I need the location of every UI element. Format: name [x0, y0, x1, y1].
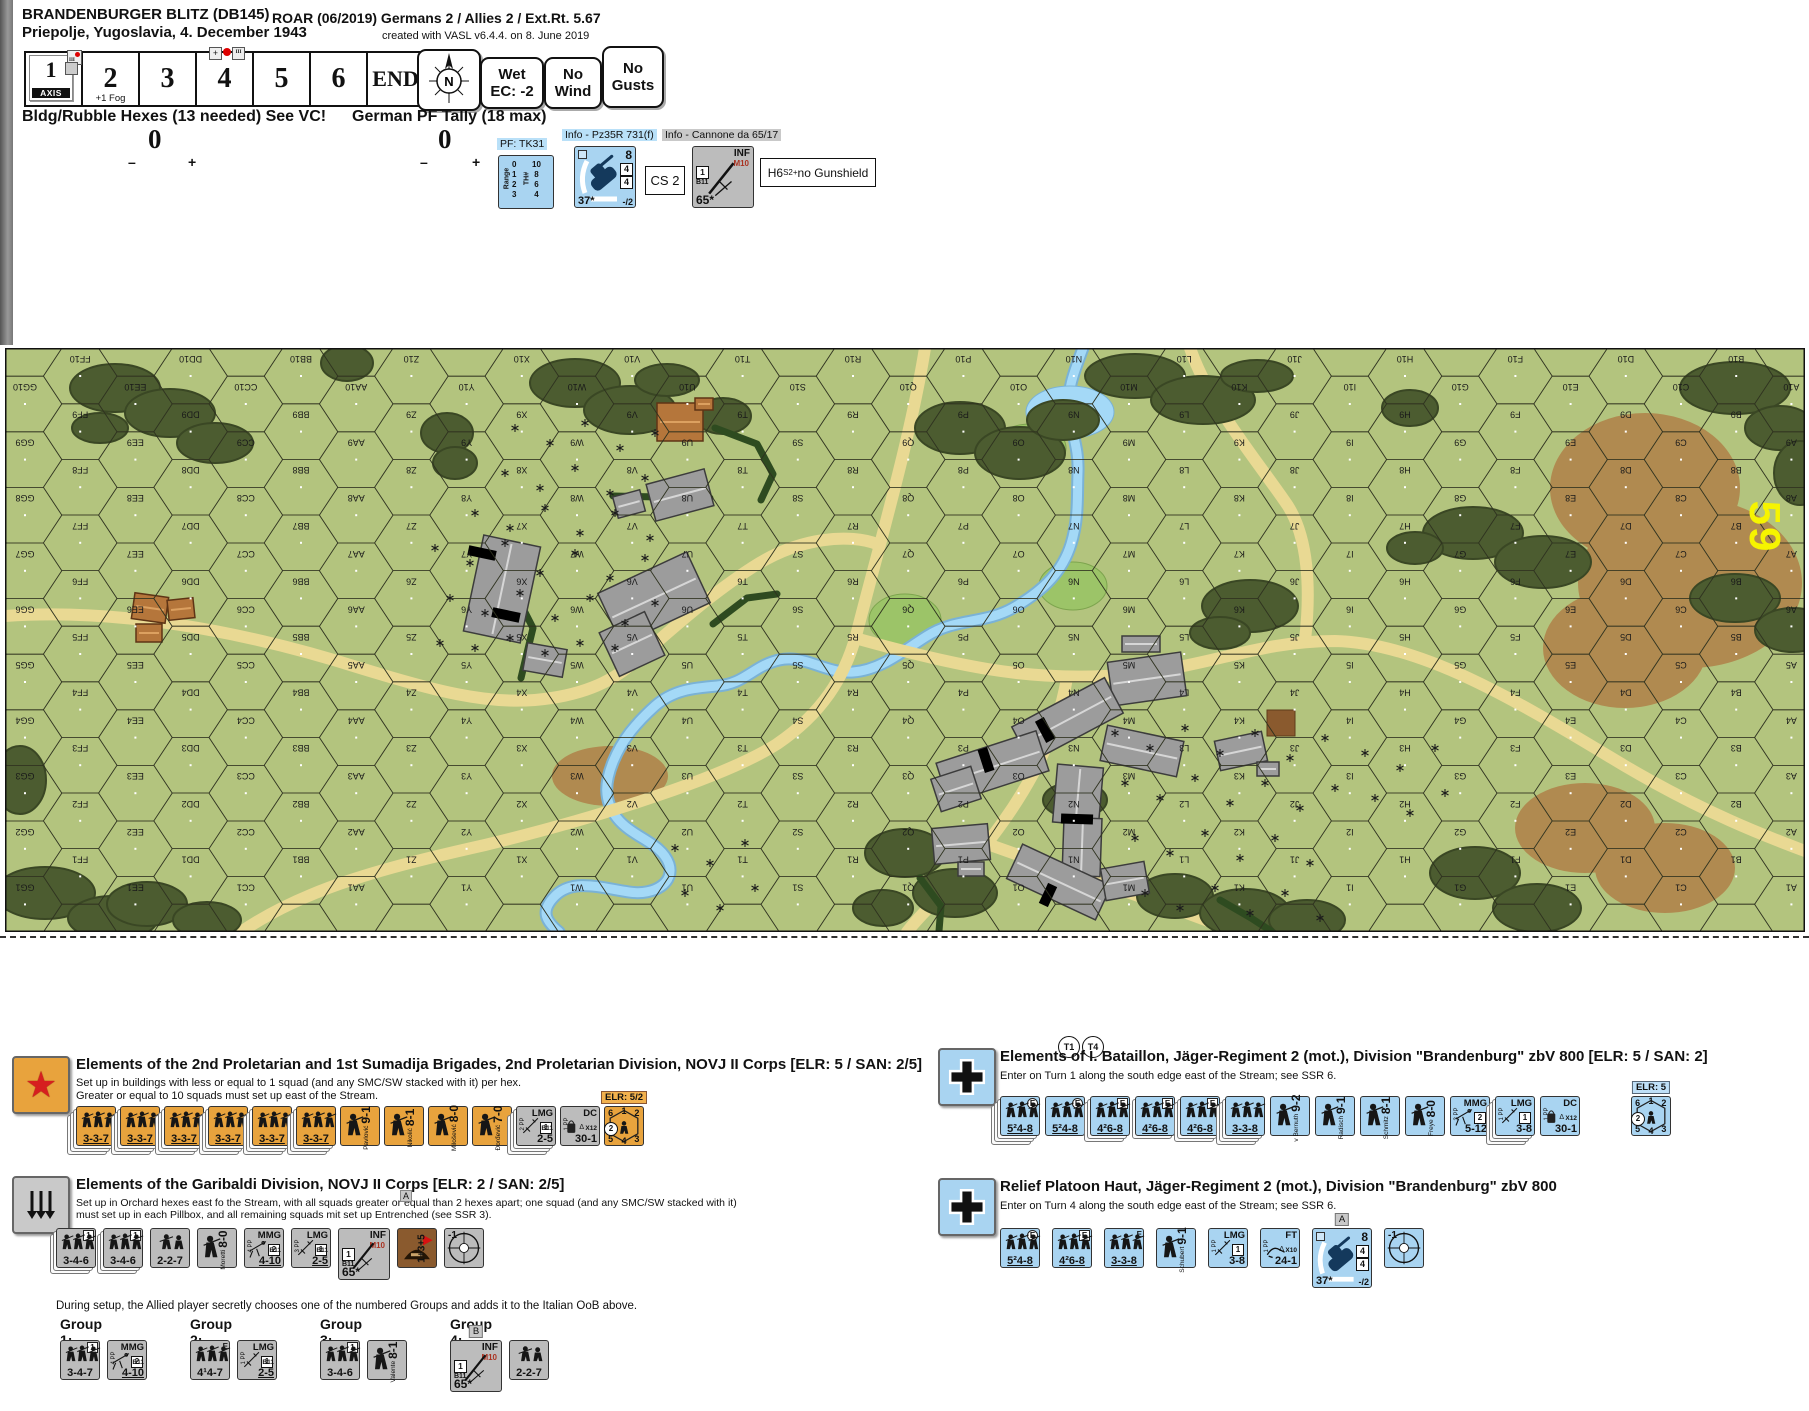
hex-map-board-59[interactable]: GG10GG9GG8GG7GG6GG5GG4GG3GG2GG1FF10FF9FF… — [5, 348, 1805, 932]
svg-text:CC9: CC9 — [237, 438, 255, 448]
svg-text:AA10: AA10 — [345, 382, 367, 392]
svg-text:M1: M1 — [1123, 882, 1136, 892]
svg-text:V4: V4 — [627, 688, 638, 698]
squad-counter[interactable]: 3-3-7 — [296, 1106, 336, 1146]
balkenkreuz-icon — [946, 1186, 988, 1228]
svg-text:J6: J6 — [1290, 576, 1300, 586]
svg-text:C2: C2 — [1675, 827, 1687, 837]
svg-text:EE1: EE1 — [127, 882, 144, 892]
allied-panel-title: Elements of the 2nd Proletarian and 1st … — [76, 1056, 922, 1073]
svg-text:Y6: Y6 — [461, 604, 472, 614]
allied-setup-line2: Greater or equal to 10 squads must set u… — [76, 1090, 378, 1102]
svg-text:T7: T7 — [737, 521, 748, 531]
svg-text:H4: H4 — [1399, 688, 1411, 698]
crew-counter[interactable]: 2-2-7 — [509, 1340, 549, 1380]
svg-text:Z6: Z6 — [406, 576, 417, 586]
turn-cell-4[interactable]: 4+III — [197, 51, 254, 107]
wind-line: Wind — [555, 83, 592, 100]
squad-counter[interactable]: 3-3-8 — [1225, 1096, 1265, 1136]
svg-text:R5: R5 — [847, 632, 859, 642]
svg-text:L1: L1 — [1179, 854, 1189, 864]
Schmitz-counter[interactable]: Schmitz8-1 — [1360, 1096, 1400, 1136]
acq-counter[interactable]: -1 — [444, 1228, 484, 1268]
cannone-counter[interactable]: INFM101B1165* — [692, 146, 754, 208]
bldg-minus-button[interactable]: – — [128, 154, 136, 170]
svg-text:K9: K9 — [1234, 438, 1245, 448]
garibaldi-faction-icon — [12, 1176, 70, 1234]
svg-text:FF8: FF8 — [72, 465, 88, 475]
svg-text:O2: O2 — [1013, 827, 1025, 837]
svg-text:V9: V9 — [627, 410, 638, 420]
svg-text:R7: R7 — [847, 521, 859, 531]
svg-text:E1: E1 — [1565, 882, 1576, 892]
squad-counter[interactable]: E5²4-8 — [1045, 1096, 1085, 1136]
pf-tk-counter[interactable]: Range 0 1 2 3 TH# 10 8 6 4 — [498, 155, 554, 209]
svg-text:E9: E9 — [1565, 438, 1576, 448]
marker-a-label: A — [400, 1190, 412, 1202]
svg-text:FF5: FF5 — [72, 632, 88, 642]
svg-text:M2: M2 — [1123, 827, 1136, 837]
gunshield-sup: S2+ — [783, 168, 797, 177]
svg-text:O10: O10 — [1010, 382, 1027, 392]
german1-panel-title: Elements of I. Bataillon, Jäger-Regiment… — [1000, 1048, 1708, 1065]
weather-box[interactable]: Wet EC: -2 — [480, 57, 544, 109]
svg-text:Q5: Q5 — [902, 660, 914, 670]
turn-cell-2[interactable]: 2+1 Fog — [83, 51, 140, 107]
pf-th-label: TH# — [524, 162, 531, 196]
svg-text:L9: L9 — [1179, 410, 1189, 420]
map-panel-separator — [0, 936, 1809, 938]
svg-text:X8: X8 — [516, 465, 527, 475]
svg-text:X1: X1 — [516, 854, 527, 864]
garibaldi-counter-row: 13-4-613-4-62-2-7Moretti8-0MMG4 PP2B114-… — [56, 1228, 484, 1280]
turn-cell-1[interactable]: 1AXISIII — [24, 51, 83, 107]
svg-text:A3: A3 — [1786, 771, 1797, 781]
svg-text:CC8: CC8 — [237, 493, 255, 503]
svg-text:T1: T1 — [737, 854, 748, 864]
svg-text:Y1: Y1 — [461, 882, 472, 892]
cannone-info-label: Info - Cannone da 65/17 — [662, 129, 781, 141]
svg-text:Z8: Z8 — [406, 465, 417, 475]
svg-text:N9: N9 — [1068, 410, 1080, 420]
squad-counter[interactable]: 13-4-6 — [103, 1228, 143, 1268]
svg-text:EE9: EE9 — [127, 438, 144, 448]
svg-text:S2: S2 — [792, 827, 803, 837]
svg-text:I8: I8 — [1346, 493, 1354, 503]
pz35r-counter[interactable]: 84437*-/2 — [574, 146, 636, 208]
counter-top-label: A — [1335, 1213, 1349, 1226]
compass-box[interactable]: N — [417, 49, 481, 111]
squad-counter[interactable]: 3-3-7 — [76, 1106, 116, 1146]
Schubert-counter[interactable]: Schubert9-1 — [1156, 1228, 1196, 1268]
svg-text:D5: D5 — [1620, 632, 1632, 642]
LMG-counter[interactable]: LMG3 PP1B112-5 — [291, 1228, 331, 1268]
gusts-box[interactable]: No Gusts — [602, 46, 664, 108]
svg-text:BB1: BB1 — [292, 854, 309, 864]
LMG-counter[interactable]: LMG1 PP13-8 — [1495, 1096, 1535, 1136]
elr-counter[interactable]: 6125432ELR: 5 — [1631, 1096, 1671, 1136]
board-number: 59 — [1740, 501, 1789, 554]
svg-text:B2: B2 — [1731, 799, 1742, 809]
tank-counter[interactable]: 84437*-/2A — [1312, 1228, 1372, 1288]
squad-counter[interactable]: E4²6-8 — [1052, 1228, 1092, 1268]
squad-counter[interactable]: E3-3-8 — [1104, 1228, 1144, 1268]
svg-text:S10: S10 — [790, 382, 806, 392]
weather-line: EC: -2 — [490, 83, 533, 100]
LMG-counter[interactable]: LMG1 PP1B112-5 — [237, 1340, 277, 1380]
svg-text:H7: H7 — [1399, 521, 1411, 531]
svg-text:P10: P10 — [955, 354, 971, 364]
svg-text:E2: E2 — [1565, 827, 1576, 837]
svg-text:DD10: DD10 — [179, 354, 202, 364]
svg-text:B1: B1 — [1731, 854, 1742, 864]
v Bernuth-counter[interactable]: v Bernuth9-2 — [1270, 1096, 1310, 1136]
svg-text:J8: J8 — [1290, 465, 1300, 475]
pf-minus-button[interactable]: – — [420, 154, 428, 170]
svg-text:Z9: Z9 — [406, 410, 417, 420]
svg-text:N7: N7 — [1068, 521, 1080, 531]
svg-text:M9: M9 — [1123, 438, 1136, 448]
group-choice-note: During setup, the Allied player secretly… — [56, 1300, 637, 1312]
svg-text:R3: R3 — [847, 743, 859, 753]
svg-text:GG10: GG10 — [13, 382, 37, 392]
svg-text:M6: M6 — [1123, 604, 1136, 614]
turn-cell-6[interactable]: 6 — [311, 51, 368, 107]
svg-text:Y4: Y4 — [461, 716, 472, 726]
svg-text:I6: I6 — [1346, 604, 1354, 614]
svg-text:V7: V7 — [627, 521, 638, 531]
svg-text:S1: S1 — [792, 882, 803, 892]
svg-text:U9: U9 — [682, 438, 694, 448]
svg-text:C9: C9 — [1675, 438, 1687, 448]
svg-text:Z7: Z7 — [406, 521, 417, 531]
svg-text:X2: X2 — [516, 799, 527, 809]
svg-text:M7: M7 — [1123, 549, 1136, 559]
svg-text:R1: R1 — [847, 854, 859, 864]
svg-text:DD6: DD6 — [182, 576, 200, 586]
svg-text:E7: E7 — [1565, 549, 1576, 559]
svg-text:V2: V2 — [627, 799, 638, 809]
svg-text:P8: P8 — [958, 465, 969, 475]
svg-text:FF9: FF9 — [72, 410, 88, 420]
german-faction-icon — [938, 1048, 996, 1106]
svg-text:Q6: Q6 — [902, 604, 914, 614]
counter-top-label: ELR: 5 — [1632, 1081, 1670, 1094]
wind-line: No — [563, 66, 583, 83]
LMG-counter[interactable]: LMG2 PP1B112-5 — [516, 1106, 556, 1146]
squad-counter[interactable]: 3-3-7 — [164, 1106, 204, 1146]
svg-text:O6: O6 — [1013, 604, 1025, 614]
group-2-counters: E4¹4-7LMG1 PP1B112-5 — [190, 1340, 277, 1380]
svg-text:X7: X7 — [516, 521, 527, 531]
svg-text:D1: D1 — [1620, 854, 1632, 864]
svg-text:Q3: Q3 — [902, 771, 914, 781]
svg-text:P2: P2 — [958, 799, 969, 809]
svg-text:K4: K4 — [1234, 716, 1245, 726]
squad-counter[interactable]: E5²4-8 — [1000, 1096, 1040, 1136]
weather-line: Wet — [498, 66, 525, 83]
svg-text:P5: P5 — [958, 632, 969, 642]
svg-text:BB10: BB10 — [290, 354, 312, 364]
svg-text:I2: I2 — [1346, 827, 1354, 837]
squad-counter[interactable]: E4¹4-7 — [190, 1340, 230, 1380]
squad-counter[interactable]: 3-3-7 — [120, 1106, 160, 1146]
svg-text:E4: E4 — [1565, 716, 1576, 726]
mini-counter[interactable] — [65, 62, 78, 75]
board-59-svg[interactable]: GG10GG9GG8GG7GG6GG5GG4GG3GG2GG1FF10FF9FF… — [5, 348, 1805, 932]
Milošević-counter[interactable]: Milošević8-0 — [428, 1106, 468, 1146]
pf-range-label: Range — [504, 162, 511, 196]
svg-text:GG8: GG8 — [15, 493, 34, 503]
Pavlović-counter[interactable]: Pavlović9-1 — [340, 1106, 380, 1146]
svg-text:X10: X10 — [514, 354, 530, 364]
svg-text:FF7: FF7 — [72, 521, 88, 531]
svg-text:B8: B8 — [1731, 465, 1742, 475]
svg-text:BB9: BB9 — [292, 410, 309, 420]
MMG-counter[interactable]: MMG3 PP25-12 — [1450, 1096, 1490, 1136]
turn-cell-5[interactable]: 5 — [254, 51, 311, 107]
squad-counter[interactable]: 13-4-7 — [60, 1340, 100, 1380]
LMG-counter[interactable]: LMG1 PP13-8 — [1208, 1228, 1248, 1268]
gunshield-rest: no Gunshield — [798, 166, 869, 180]
Freye-counter[interactable]: Freye8-0 — [1405, 1096, 1445, 1136]
squad-counter[interactable]: E4²6-8 — [1090, 1096, 1130, 1136]
garibaldi-panel-title: Elements of the Garibaldi Division, NOVJ… — [76, 1176, 564, 1193]
balkenkreuz-icon — [946, 1056, 988, 1098]
svg-text:R6: R6 — [847, 576, 859, 586]
squad-counter[interactable]: E5²4-8 — [1000, 1228, 1040, 1268]
svg-text:O9: O9 — [1013, 438, 1025, 448]
svg-text:P4: P4 — [958, 688, 969, 698]
svg-text:BB6: BB6 — [292, 576, 309, 586]
allied-counter-row: 3-3-73-3-73-3-73-3-73-3-73-3-7Pavlović9-… — [76, 1106, 644, 1146]
svg-text:D6: D6 — [1620, 576, 1632, 586]
svg-text:G2: G2 — [1454, 827, 1466, 837]
svg-text:FF1: FF1 — [72, 854, 88, 864]
svg-text:R8: R8 — [847, 465, 859, 475]
svg-text:T10: T10 — [735, 354, 751, 364]
svg-text:DD4: DD4 — [182, 688, 200, 698]
svg-text:T3: T3 — [737, 743, 748, 753]
svg-text:J4: J4 — [1290, 688, 1300, 698]
svg-text:D4: D4 — [1620, 688, 1632, 698]
svg-text:FF10: FF10 — [70, 354, 91, 364]
svg-text:Q10: Q10 — [900, 382, 917, 392]
svg-text:E6: E6 — [1565, 604, 1576, 614]
svg-text:H1: H1 — [1399, 854, 1411, 864]
svg-text:C10: C10 — [1673, 382, 1690, 392]
svg-text:CC2: CC2 — [237, 827, 255, 837]
svg-text:R9: R9 — [847, 410, 859, 420]
svg-text:CC1: CC1 — [237, 882, 255, 892]
svg-text:DD3: DD3 — [182, 743, 200, 753]
svg-text:W2: W2 — [570, 827, 584, 837]
svg-text:M4: M4 — [1123, 716, 1136, 726]
svg-text:AA4: AA4 — [348, 716, 365, 726]
svg-text:P6: P6 — [958, 576, 969, 586]
window-edge — [0, 0, 13, 345]
svg-text:O4: O4 — [1013, 716, 1025, 726]
counter-top-label: ELR: 5/2 — [601, 1091, 647, 1104]
svg-text:F9: F9 — [1510, 410, 1521, 420]
svg-text:B3: B3 — [1731, 743, 1742, 753]
pf-range-values: 0 1 2 3 — [512, 160, 516, 200]
svg-text:G10: G10 — [1452, 382, 1469, 392]
MMG-counter[interactable]: MMG4 PP2B114-10 — [244, 1228, 284, 1268]
svg-text:Z5: Z5 — [406, 632, 417, 642]
pf-counter-label: PF: TK31 — [497, 138, 547, 150]
svg-text:I5: I5 — [1346, 660, 1354, 670]
vasl-window: { "header":{ "title":"BRANDENBURGER BLIT… — [0, 0, 1809, 1411]
svg-text:GG6: GG6 — [15, 604, 34, 614]
compass-icon: N — [419, 51, 479, 109]
Đorđević-counter[interactable]: Đorđević7-0 — [472, 1106, 512, 1146]
gunshield-h6: H6 — [768, 166, 783, 180]
svg-text:W4: W4 — [570, 716, 584, 726]
svg-text:FF4: FF4 — [72, 688, 88, 698]
svg-text:K3: K3 — [1234, 771, 1245, 781]
svg-text:BB4: BB4 — [292, 688, 309, 698]
svg-text:H3: H3 — [1399, 743, 1411, 753]
svg-text:BB3: BB3 — [292, 743, 309, 753]
svg-text:N5: N5 — [1068, 632, 1080, 642]
turn-track: 1AXISIII2+1 Fog34+III56END — [24, 51, 425, 107]
svg-text:AA6: AA6 — [348, 604, 365, 614]
svg-text:D2: D2 — [1620, 799, 1632, 809]
svg-text:Q1: Q1 — [902, 882, 914, 892]
pf-plus-button[interactable]: + — [472, 154, 480, 170]
bldg-tally-value[interactable]: 0 — [148, 124, 162, 155]
Valente-counter[interactable]: Valente8-1 — [367, 1340, 407, 1380]
svg-text:O8: O8 — [1013, 493, 1025, 503]
svg-text:H2: H2 — [1399, 799, 1411, 809]
svg-text:S6: S6 — [792, 604, 803, 614]
svg-text:L3: L3 — [1179, 743, 1189, 753]
svg-text:G7: G7 — [1454, 549, 1466, 559]
svg-text:EE2: EE2 — [127, 827, 144, 837]
svg-text:U5: U5 — [682, 660, 694, 670]
svg-text:GG4: GG4 — [15, 716, 34, 726]
svg-text:L5: L5 — [1179, 632, 1189, 642]
svg-text:J10: J10 — [1287, 354, 1302, 364]
svg-text:Q7: Q7 — [902, 549, 914, 559]
svg-text:E3: E3 — [1565, 771, 1576, 781]
elr-counter[interactable]: 6125432ELR: 5/2 — [604, 1106, 644, 1146]
svg-text:T4: T4 — [737, 688, 748, 698]
svg-text:V1: V1 — [627, 854, 638, 864]
svg-text:T5: T5 — [737, 632, 748, 642]
squad-counter[interactable]: 3-3-7 — [252, 1106, 292, 1146]
german2-counter-row: E5²4-8E4²6-8E3-3-8Schubert9-1LMG1 PP13-8… — [1000, 1228, 1424, 1288]
svg-text:BB5: BB5 — [292, 632, 309, 642]
compass-n: N — [444, 74, 453, 89]
svg-text:Q8: Q8 — [902, 493, 914, 503]
INF-counter[interactable]: INFM101B1165*B — [450, 1340, 502, 1392]
turn-cell-3[interactable]: 3 — [140, 51, 197, 107]
three-arrows-icon — [21, 1185, 61, 1225]
svg-text:V6: V6 — [627, 576, 638, 586]
svg-text:Y2: Y2 — [461, 827, 472, 837]
wind-box[interactable]: No Wind — [544, 57, 602, 109]
turn4-mini-counters[interactable]: +III — [209, 47, 245, 60]
svg-text:G4: G4 — [1454, 716, 1466, 726]
svg-text:N8: N8 — [1068, 465, 1080, 475]
DC-counter[interactable]: DC1 PPX12Δ30-1 — [560, 1106, 600, 1146]
DC-counter[interactable]: DC1 PPX12Δ30-1 — [1540, 1096, 1580, 1136]
svg-text:DD8: DD8 — [182, 465, 200, 475]
INF-counter[interactable]: INFM101B1165* — [338, 1228, 390, 1280]
svg-text:O7: O7 — [1013, 549, 1025, 559]
svg-text:Z1: Z1 — [406, 854, 417, 864]
Nikolić-counter[interactable]: Nikolić8-1 — [384, 1106, 424, 1146]
svg-text:F2: F2 — [1510, 799, 1521, 809]
pillbox-counter[interactable]: 1+3+5 — [397, 1228, 437, 1268]
svg-text:H5: H5 — [1399, 632, 1411, 642]
svg-text:A6: A6 — [1786, 604, 1797, 614]
svg-text:CC10: CC10 — [234, 382, 257, 392]
squad-counter[interactable]: E4²6-8 — [1180, 1096, 1220, 1136]
svg-text:C1: C1 — [1675, 882, 1687, 892]
svg-text:U3: U3 — [682, 771, 694, 781]
german1-entry-line: Enter on Turn 1 along the south edge eas… — [1000, 1070, 1336, 1082]
counter-top-label: B — [469, 1325, 483, 1338]
squad-counter[interactable]: 13-4-6 — [320, 1340, 360, 1380]
svg-text:V10: V10 — [624, 354, 640, 364]
svg-text:A10: A10 — [1783, 382, 1799, 392]
Radisch-counter[interactable]: Radisch9-1 — [1315, 1096, 1355, 1136]
svg-text:W3: W3 — [570, 771, 584, 781]
svg-text:V8: V8 — [627, 465, 638, 475]
svg-text:L4: L4 — [1179, 688, 1189, 698]
svg-text:M5: M5 — [1123, 660, 1136, 670]
svg-text:Y9: Y9 — [461, 438, 472, 448]
svg-text:CC5: CC5 — [237, 660, 255, 670]
svg-text:E5: E5 — [1565, 660, 1576, 670]
acq-counter[interactable]: -1 — [1384, 1228, 1424, 1268]
svg-text:Z10: Z10 — [404, 354, 420, 364]
svg-text:DD2: DD2 — [182, 799, 200, 809]
svg-text:R4: R4 — [847, 688, 859, 698]
svg-text:GG5: GG5 — [15, 660, 34, 670]
Moretti-counter[interactable]: Moretti8-0 — [197, 1228, 237, 1268]
bldg-plus-button[interactable]: + — [188, 154, 196, 170]
svg-text:I3: I3 — [1346, 771, 1354, 781]
svg-text:DD9: DD9 — [182, 410, 200, 420]
svg-text:N4: N4 — [1068, 688, 1080, 698]
FT-counter[interactable]: FT1 PPX10Δ24-1 — [1260, 1228, 1300, 1268]
svg-text:T8: T8 — [737, 465, 748, 475]
svg-text:DD5: DD5 — [182, 632, 200, 642]
svg-text:AA7: AA7 — [348, 549, 365, 559]
MMG-counter[interactable]: MMG4 PP2B114-10 — [107, 1340, 147, 1380]
svg-text:T6: T6 — [737, 576, 748, 586]
svg-text:X9: X9 — [516, 410, 527, 420]
svg-text:I7: I7 — [1346, 549, 1354, 559]
squad-counter[interactable]: 3-3-7 — [208, 1106, 248, 1146]
squad-counter[interactable]: 13-4-6 — [56, 1228, 96, 1268]
svg-text:I9: I9 — [1346, 438, 1354, 448]
svg-text:T9: T9 — [737, 410, 748, 420]
scenario-subtitle: Priepolje, Yugoslavia, 4. December 1943 — [22, 24, 307, 41]
svg-text:G9: G9 — [1454, 438, 1466, 448]
svg-text:GG9: GG9 — [15, 438, 34, 448]
svg-text:L7: L7 — [1179, 521, 1189, 531]
pf-tally-value[interactable]: 0 — [438, 124, 452, 155]
squad-counter[interactable]: E4²6-8 — [1135, 1096, 1175, 1136]
pf-th-values: 10 8 6 4 — [532, 160, 541, 200]
svg-text:F8: F8 — [1510, 465, 1521, 475]
crew-counter[interactable]: 2-2-7 — [150, 1228, 190, 1268]
